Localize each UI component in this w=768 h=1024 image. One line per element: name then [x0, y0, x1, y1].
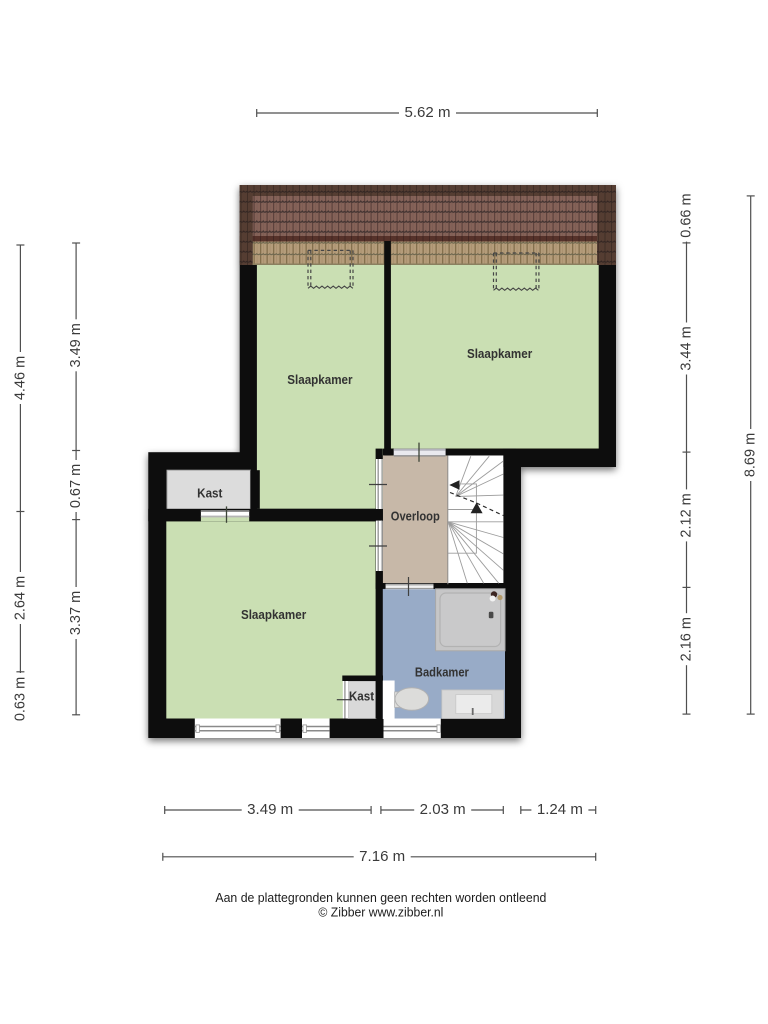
svg-text:2.12 m: 2.12 m — [679, 493, 695, 537]
svg-text:2.03 m: 2.03 m — [420, 802, 466, 818]
svg-text:© Zibber www.zibber.nl: © Zibber www.zibber.nl — [318, 906, 443, 920]
svg-text:2.16 m: 2.16 m — [679, 617, 695, 661]
svg-text:3.37 m: 3.37 m — [68, 591, 84, 635]
svg-text:2.64 m: 2.64 m — [12, 576, 28, 620]
svg-text:8.69 m: 8.69 m — [743, 433, 759, 477]
svg-text:0.67 m: 0.67 m — [68, 464, 84, 508]
svg-text:3.44 m: 3.44 m — [679, 326, 695, 370]
svg-text:Slaapkamer: Slaapkamer — [287, 372, 352, 387]
svg-text:4.46 m: 4.46 m — [12, 356, 28, 400]
svg-text:Overloop: Overloop — [391, 509, 440, 524]
svg-text:Slaapkamer: Slaapkamer — [467, 346, 532, 361]
svg-text:Badkamer: Badkamer — [415, 665, 469, 680]
svg-text:3.49 m: 3.49 m — [68, 323, 84, 367]
svg-text:5.62 m: 5.62 m — [405, 105, 451, 121]
svg-text:Aan de plattegronden kunnen ge: Aan de plattegronden kunnen geen rechten… — [215, 891, 546, 905]
svg-text:3.49 m: 3.49 m — [247, 802, 293, 818]
svg-text:Kast: Kast — [349, 689, 375, 704]
svg-text:0.63 m: 0.63 m — [12, 677, 28, 721]
svg-text:Slaapkamer: Slaapkamer — [241, 607, 306, 622]
svg-text:Kast: Kast — [197, 486, 223, 501]
svg-text:7.16 m: 7.16 m — [359, 849, 405, 865]
svg-text:1.24 m: 1.24 m — [537, 802, 583, 818]
svg-text:0.66 m: 0.66 m — [679, 193, 695, 237]
